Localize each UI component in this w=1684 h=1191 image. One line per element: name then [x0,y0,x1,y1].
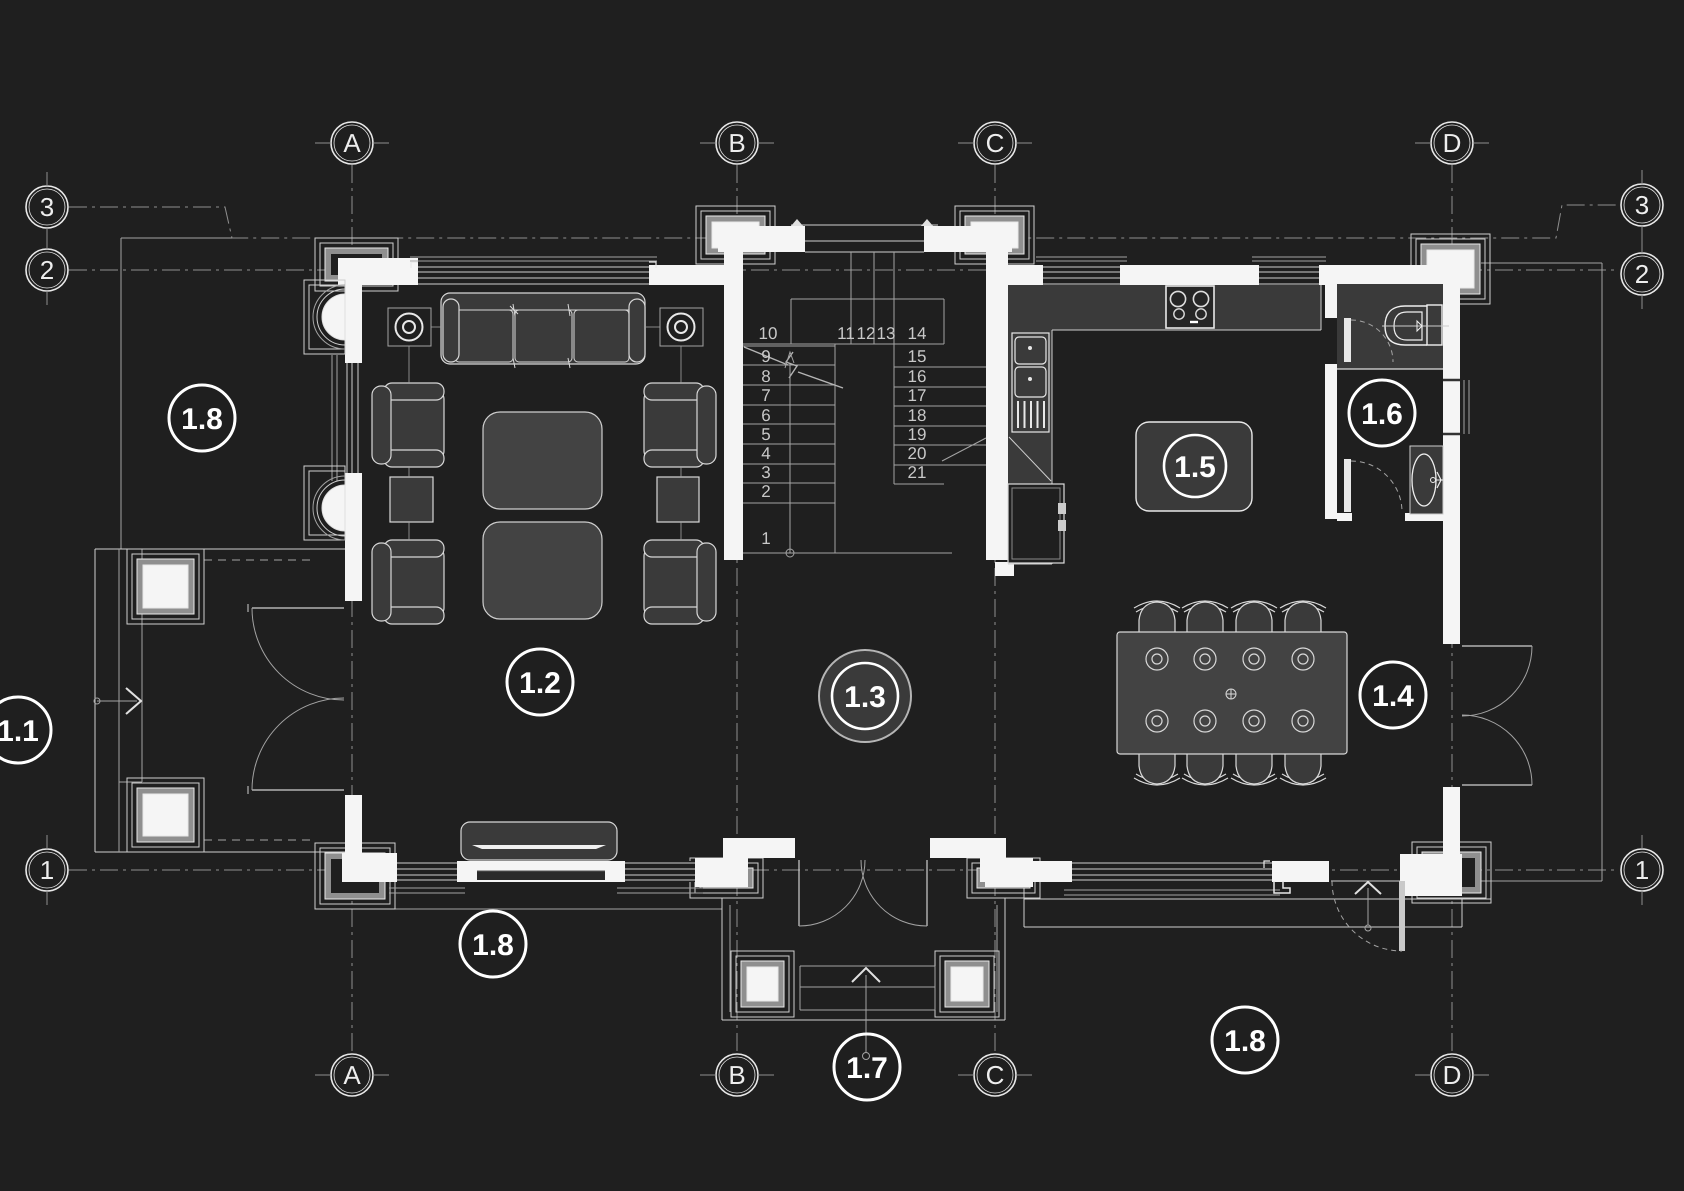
svg-text:2: 2 [40,255,54,285]
svg-text:D: D [1443,1060,1462,1090]
svg-text:1: 1 [761,529,770,548]
svg-text:D: D [1443,128,1462,158]
svg-text:A: A [343,128,361,158]
svg-text:20: 20 [908,444,927,463]
svg-text:1.7: 1.7 [846,1052,888,1085]
svg-text:1.6: 1.6 [1361,398,1403,431]
svg-text:10: 10 [759,324,778,343]
svg-text:11: 11 [837,324,855,343]
svg-text:13: 13 [877,324,896,343]
svg-text:1.2: 1.2 [519,667,561,700]
svg-text:6: 6 [761,406,770,425]
svg-text:7: 7 [761,386,770,405]
svg-text:C: C [986,128,1005,158]
svg-text:1: 1 [40,855,54,885]
svg-text:1.1: 1.1 [0,715,39,748]
svg-text:1.5: 1.5 [1174,451,1216,484]
svg-text:5: 5 [761,425,770,444]
svg-text:18: 18 [908,406,927,425]
svg-text:17: 17 [908,386,927,405]
svg-text:2: 2 [761,482,770,501]
svg-text:1.8: 1.8 [181,403,223,436]
svg-text:16: 16 [908,367,927,386]
svg-text:C: C [986,1060,1005,1090]
svg-text:12: 12 [857,324,876,343]
svg-text:4: 4 [761,444,770,463]
svg-text:21: 21 [908,463,927,482]
svg-text:9: 9 [761,347,770,366]
svg-text:2: 2 [1635,259,1649,289]
svg-text:1.3: 1.3 [844,681,886,714]
svg-text:1: 1 [1635,855,1649,885]
svg-text:19: 19 [908,425,927,444]
svg-text:8: 8 [761,367,770,386]
svg-text:1.8: 1.8 [1224,1025,1266,1058]
svg-text:3: 3 [40,192,54,222]
svg-text:3: 3 [1635,190,1649,220]
svg-text:15: 15 [908,347,927,366]
svg-text:3: 3 [761,463,770,482]
svg-text:14: 14 [908,324,927,343]
svg-text:A: A [343,1060,361,1090]
svg-text:1.4: 1.4 [1372,680,1414,713]
svg-text:B: B [728,128,745,158]
svg-text:B: B [728,1060,745,1090]
svg-text:1.8: 1.8 [472,929,514,962]
